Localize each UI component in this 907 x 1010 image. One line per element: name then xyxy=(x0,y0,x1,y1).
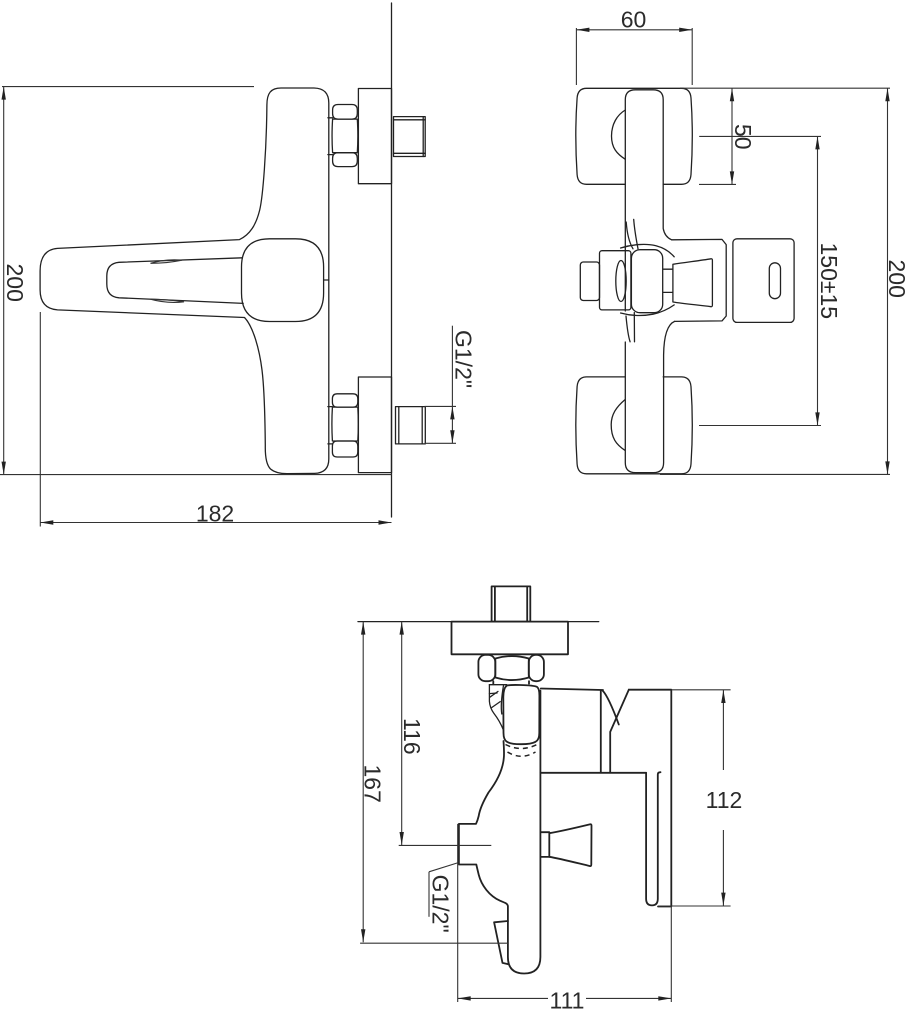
svg-text:111: 111 xyxy=(550,988,585,1010)
svg-text:167: 167 xyxy=(360,765,386,803)
svg-text:G1/2": G1/2" xyxy=(427,875,453,933)
svg-text:200: 200 xyxy=(884,260,907,298)
svg-text:60: 60 xyxy=(621,6,647,32)
svg-text:112: 112 xyxy=(706,787,743,813)
svg-text:116: 116 xyxy=(399,718,425,755)
svg-text:G1/2": G1/2" xyxy=(451,330,477,388)
svg-text:150±15: 150±15 xyxy=(816,243,842,320)
svg-text:182: 182 xyxy=(196,501,234,527)
svg-text:200: 200 xyxy=(2,264,28,302)
